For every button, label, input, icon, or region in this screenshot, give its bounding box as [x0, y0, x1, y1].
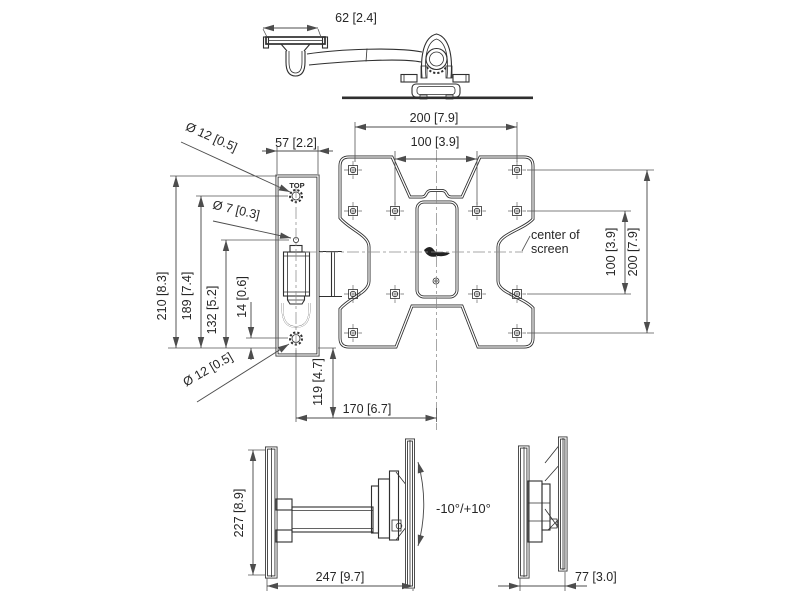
- center-of-screen-label-line1: center of: [531, 228, 580, 242]
- tilt-range-label: -10°/+10°: [436, 501, 491, 516]
- center-of-screen-label-line2: screen: [531, 242, 569, 256]
- tilt-arc: [418, 462, 424, 546]
- dim-height-14: 14 [0.6]: [235, 276, 249, 318]
- dim-vesa-width-200: 200 [7.9]: [410, 111, 459, 125]
- dim-arm-depth: 62 [2.4]: [335, 11, 377, 25]
- dim-vesa-height-200: 200 [7.9]: [626, 228, 640, 277]
- dim-hole-mid-diameter: Ø 7 [0.3]: [211, 198, 261, 222]
- dim-vesa-height-100: 100 [3.9]: [604, 228, 618, 277]
- dim-side-height-227: 227 [8.9]: [232, 489, 246, 538]
- dim-height-210: 210 [8.3]: [155, 272, 169, 321]
- side-view-folded: 77 [3.0]: [498, 438, 617, 591]
- drawing-canvas: 62 [2.4] TOP: [0, 0, 800, 600]
- technical-drawing-page: 62 [2.4] TOP: [0, 0, 800, 600]
- front-view: TOP: [155, 111, 654, 430]
- vesa-center-strip: [417, 202, 457, 297]
- dim-width-170: 170 [6.7]: [343, 402, 392, 416]
- side-view-extended: 227 [8.9] 247 [9.7]: [232, 440, 424, 591]
- dim-offset-119: 119 [4.7]: [311, 358, 325, 406]
- dim-bracket-width: 57 [2.2]: [275, 136, 317, 150]
- wall-bracket-front: TOP: [277, 176, 318, 355]
- dim-vesa-width-100: 100 [3.9]: [411, 135, 460, 149]
- dim-height-132: 132 [5.2]: [205, 286, 219, 335]
- dim-side-depth-247: 247 [9.7]: [316, 570, 365, 584]
- dim-folded-depth-77: 77 [3.0]: [575, 570, 617, 584]
- dim-height-189: 189 [7.4]: [180, 272, 194, 321]
- dim-hole-top-diameter: Ø 12 [0.5]: [183, 120, 239, 155]
- top-marking-label: TOP: [289, 181, 304, 190]
- top-view-arm: 62 [2.4]: [263, 11, 533, 99]
